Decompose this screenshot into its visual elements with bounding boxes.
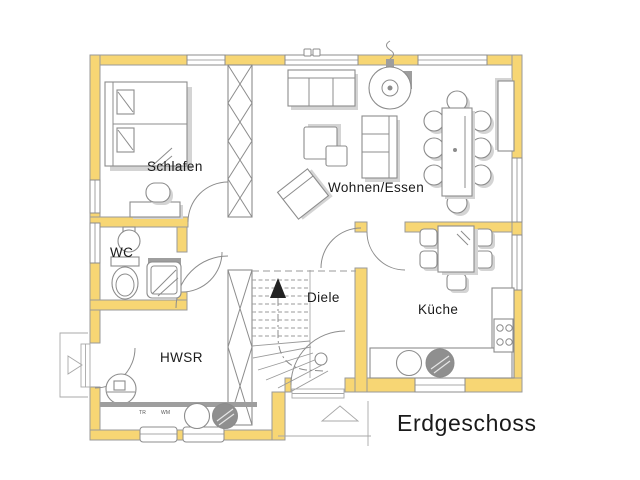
window [187, 55, 225, 65]
window [415, 378, 465, 392]
sideboard [495, 78, 514, 151]
kitchen-table-group [420, 226, 495, 293]
door-arc-wohnen [321, 228, 361, 268]
staircase [252, 270, 356, 391]
room-label-kueche: Küche [418, 302, 458, 317]
appliance-label-washer: WM [161, 410, 170, 416]
toilet [111, 257, 139, 299]
door-arc-schlafen [188, 182, 228, 222]
room-label-schlafen: Schlafen [147, 159, 203, 174]
window [140, 427, 177, 442]
window [90, 180, 100, 213]
door-arc-kueche [367, 232, 405, 270]
coffee-table [304, 124, 347, 166]
entrance-threshold [292, 389, 344, 398]
fireplace-stove [369, 59, 412, 109]
floor-plan-drawing [0, 0, 640, 480]
window [512, 158, 522, 222]
window [285, 49, 358, 65]
armchair [278, 167, 333, 221]
window [512, 235, 522, 290]
stove-burners [494, 319, 513, 352]
appliance-label-dryer: TR [139, 410, 146, 416]
room-label-wc: WC [110, 245, 133, 260]
sofa-large [288, 70, 358, 110]
window [183, 427, 224, 442]
utility-sink [106, 374, 136, 404]
room-label-diele: Diele [307, 290, 340, 305]
dryer-appliance [185, 404, 210, 429]
washer-appliance [213, 404, 238, 429]
dining-table-group [424, 91, 494, 216]
window [90, 223, 100, 263]
side-entrance-sill [81, 344, 90, 387]
wardrobe-column [228, 65, 252, 217]
floor-plan: Schlafen Wohnen/Essen WC Diele Küche HWS… [0, 0, 640, 480]
door-arc-wc [182, 252, 222, 292]
entrance-marker [278, 401, 371, 446]
room-label-wohnen-essen: Wohnen/Essen [328, 180, 424, 195]
sofa-small [362, 116, 400, 182]
shower [147, 258, 181, 298]
room-label-hwsr: HWSR [160, 350, 203, 365]
double-bed [105, 82, 192, 171]
window [418, 55, 487, 65]
storage-column [228, 270, 252, 425]
floor-title: Erdgeschoss [397, 410, 537, 437]
